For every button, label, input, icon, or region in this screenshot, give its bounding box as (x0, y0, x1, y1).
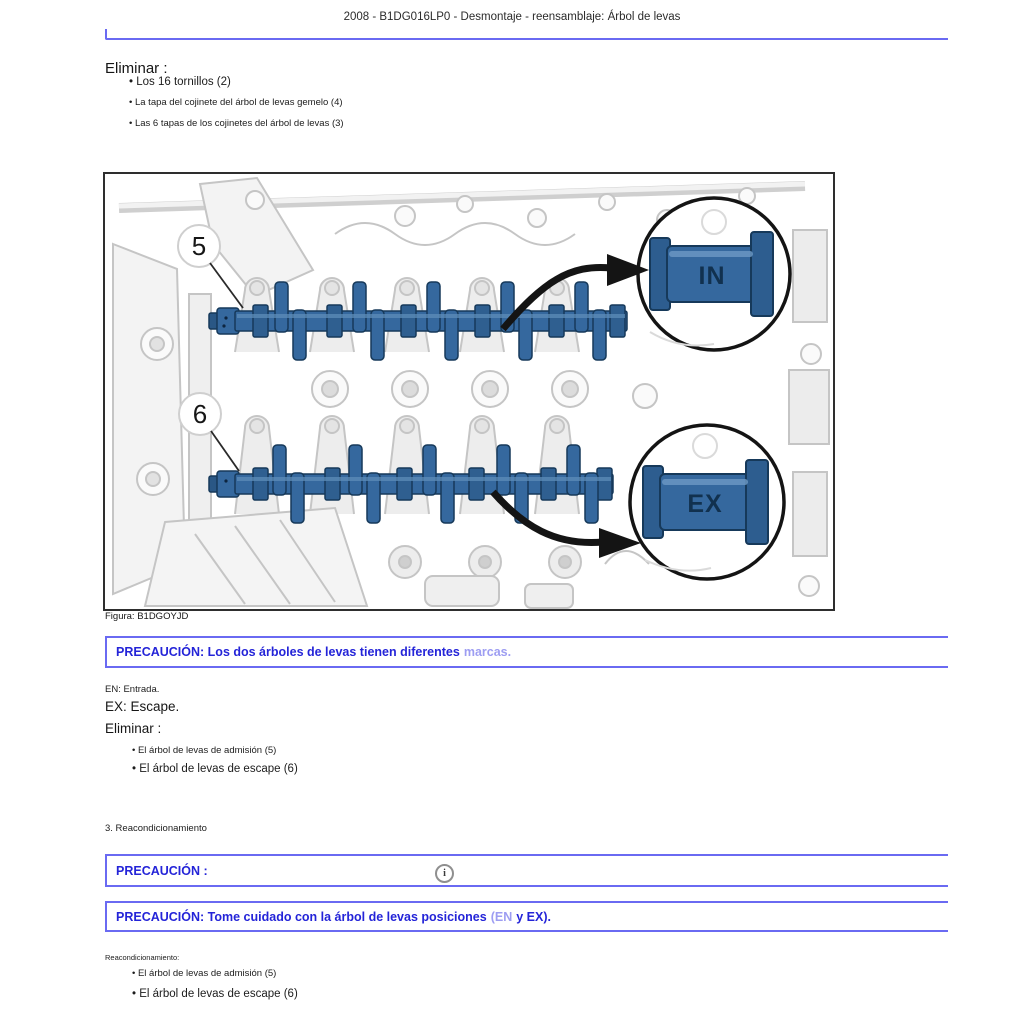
caution-box-positions: PRECAUCIÓN: Tome cuidado con la árbol de… (105, 901, 948, 932)
figure-caption: Figura: B1DGOYJD (105, 611, 188, 622)
svg-text:6: 6 (193, 399, 207, 429)
list-item: Las 6 tapas de los cojinetes del árbol d… (129, 118, 344, 129)
page-title: 2008 - B1DG016LP0 - Desmontaje - reensam… (0, 11, 1024, 23)
section-heading-remove-1: Eliminar : (105, 60, 168, 77)
list-item: Los 16 tornillos (2) (129, 76, 231, 88)
engine-illustration: 5 6 IN (105, 174, 833, 609)
manual-page: 2008 - B1DG016LP0 - Desmontaje - reensam… (0, 0, 1024, 1024)
caution-link-marcas[interactable]: marcas. (464, 645, 511, 659)
section-heading-recondition: Reacondicionamiento: (105, 953, 179, 962)
clipped-caution-box-bottom (105, 29, 948, 40)
legend-ex: EX: Escape. (105, 699, 179, 714)
caution-box-marks: PRECAUCIÓN: Los dos árboles de levas tie… (105, 636, 948, 668)
list-item: El árbol de levas de escape (6) (132, 763, 298, 775)
caution-text: PRECAUCIÓN: Los dos árboles de levas tie… (116, 645, 460, 659)
list-item: El árbol de levas de admisión (5) (132, 968, 276, 979)
info-icon[interactable]: i (435, 864, 454, 883)
caution-text-tail: y EX). (516, 910, 551, 924)
step-label: 3. Reacondicionamiento (105, 823, 207, 834)
caution-muted-en: (EN (491, 910, 513, 924)
svg-text:5: 5 (192, 231, 206, 261)
caution-text: PRECAUCIÓN : (116, 864, 208, 878)
legend-en: EN: Entrada. (105, 684, 159, 695)
caution-text: PRECAUCIÓN: Tome cuidado con la árbol de… (116, 910, 487, 924)
list-item: El árbol de levas de escape (6) (132, 988, 298, 1000)
list-item: La tapa del cojinete del árbol de levas … (129, 97, 343, 108)
svg-text:EX: EX (687, 490, 722, 518)
camshaft-figure: 5 6 IN (103, 172, 835, 611)
section-heading-remove-2: Eliminar : (105, 721, 161, 736)
list-item: El árbol de levas de admisión (5) (132, 745, 276, 756)
svg-text:IN: IN (699, 262, 726, 290)
caution-box-blank: PRECAUCIÓN : i (105, 854, 948, 887)
